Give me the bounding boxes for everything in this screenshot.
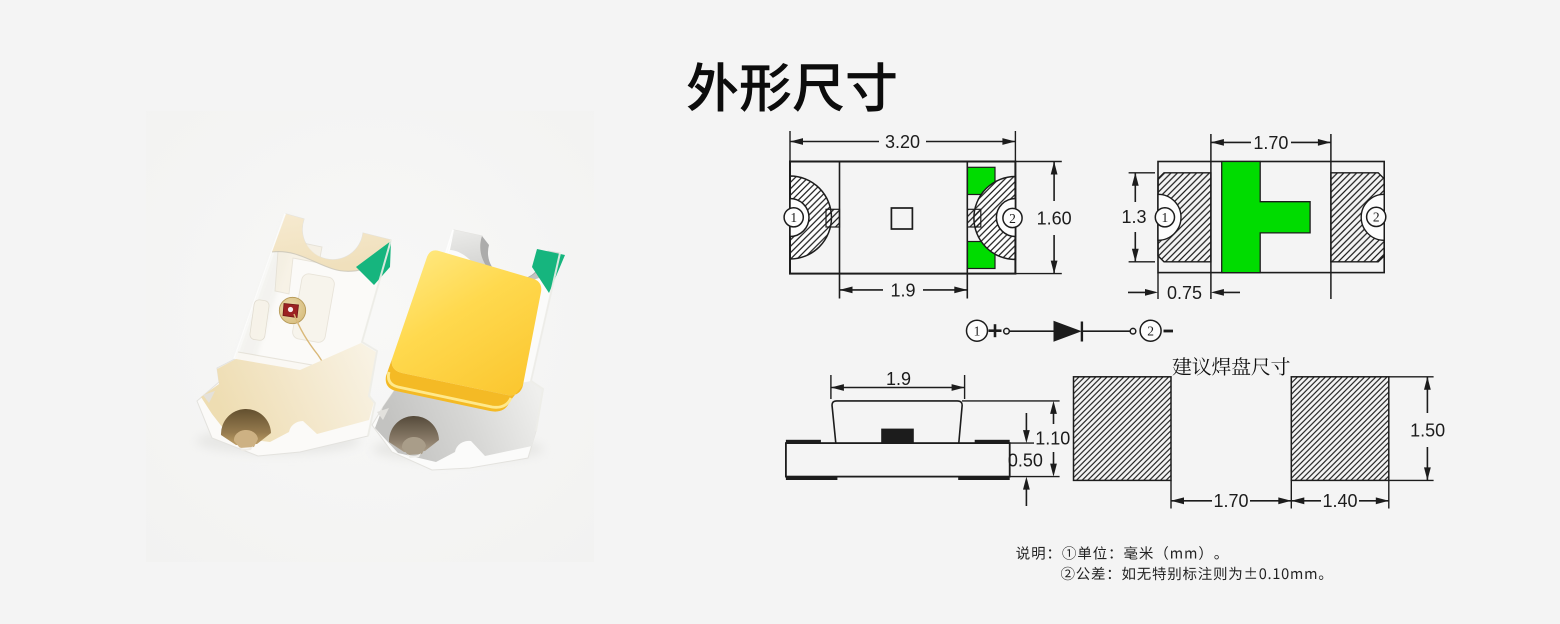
svg-text:2: 2 <box>1009 211 1016 226</box>
svg-text:1.60: 1.60 <box>1037 209 1072 229</box>
svg-text:0.50: 0.50 <box>1008 451 1043 471</box>
svg-text:2: 2 <box>1147 323 1154 338</box>
svg-text:1.10: 1.10 <box>1035 429 1070 449</box>
svg-text:0.75: 0.75 <box>1167 283 1202 303</box>
svg-text:1: 1 <box>1162 210 1169 225</box>
svg-text:1.70: 1.70 <box>1253 133 1288 153</box>
svg-text:1.50: 1.50 <box>1410 420 1445 440</box>
svg-text:1.9: 1.9 <box>890 280 915 300</box>
svg-text:3.20: 3.20 <box>885 132 920 152</box>
svg-text:1.70: 1.70 <box>1213 491 1248 511</box>
svg-text:2: 2 <box>1373 210 1380 225</box>
svg-text:1.3: 1.3 <box>1121 207 1146 227</box>
svg-text:1: 1 <box>790 210 797 225</box>
svg-text:1.40: 1.40 <box>1322 491 1357 511</box>
svg-text:1.9: 1.9 <box>886 369 911 389</box>
svg-text:1: 1 <box>974 323 981 338</box>
